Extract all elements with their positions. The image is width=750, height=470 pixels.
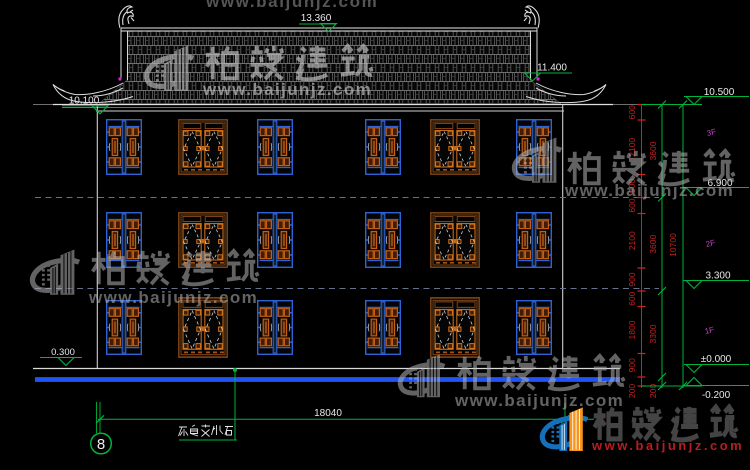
svg-text:600: 600 (627, 105, 637, 119)
svg-text:www.baijunjz.com: www.baijunjz.com (88, 288, 258, 307)
svg-text:www.baijunjz.com: www.baijunjz.com (564, 181, 734, 200)
svg-text:10.100: 10.100 (69, 96, 100, 107)
svg-text:3300: 3300 (648, 324, 658, 343)
svg-text:2100: 2100 (627, 231, 637, 250)
svg-text:3.300: 3.300 (705, 271, 730, 282)
svg-text:18040: 18040 (314, 408, 342, 419)
svg-text:13.360: 13.360 (301, 13, 332, 24)
svg-text:600: 600 (627, 198, 637, 212)
svg-text:11.400: 11.400 (537, 63, 567, 74)
svg-text:200: 200 (627, 384, 637, 398)
svg-text:3F: 3F (706, 127, 717, 138)
svg-text:www.baijunjz.com: www.baijunjz.com (205, 0, 378, 11)
svg-text:www.baijunjz.com: www.baijunjz.com (454, 391, 624, 410)
svg-text:1F: 1F (704, 325, 715, 336)
svg-text:-0.200: -0.200 (702, 390, 731, 401)
svg-text:600: 600 (627, 291, 637, 305)
svg-text:8: 8 (97, 436, 105, 453)
svg-text:www.baijunjz.com: www.baijunjz.com (202, 80, 372, 99)
svg-text:3600: 3600 (648, 235, 658, 254)
svg-text:900: 900 (627, 358, 637, 372)
svg-text:3600: 3600 (648, 141, 658, 160)
svg-text:900: 900 (627, 272, 637, 286)
svg-text:±0.000: ±0.000 (701, 354, 732, 365)
svg-text:2F: 2F (705, 238, 716, 249)
svg-text:0.300: 0.300 (51, 347, 75, 358)
svg-text:10700: 10700 (668, 233, 678, 257)
svg-text:www.baijunjz.com: www.baijunjz.com (591, 438, 744, 453)
svg-text:1800: 1800 (627, 320, 637, 339)
